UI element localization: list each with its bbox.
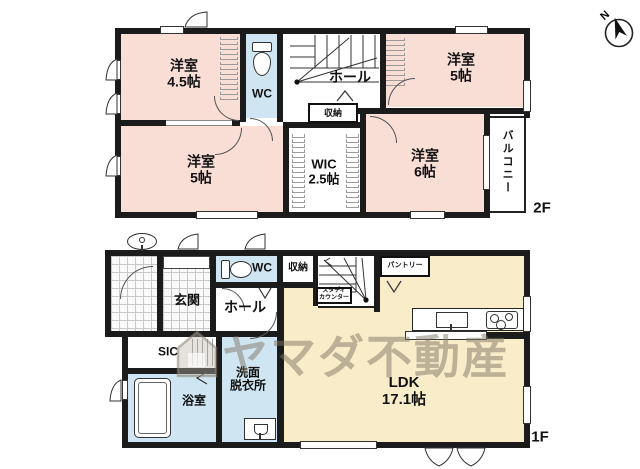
window [196, 211, 258, 219]
window [122, 380, 128, 400]
watermark-text: ヤマダ不動産 [222, 321, 510, 387]
entrance-door-swing-icon [176, 232, 200, 251]
outdoor-faucet-stem [141, 245, 143, 251]
wall [358, 108, 530, 114]
room-label-hall-1f: ホール [224, 300, 266, 316]
window [483, 135, 490, 190]
room-label-bedroom-4-5: 洋室4.5帖 [167, 58, 200, 89]
floor-label-1f: 1F [531, 430, 549, 447]
wall [277, 34, 283, 122]
wall [157, 256, 163, 337]
room-label-bedroom-5-top: 洋室5帖 [447, 52, 475, 83]
casement-window-icon [243, 232, 267, 251]
wall [105, 250, 111, 337]
casement-window-icon [104, 57, 118, 82]
floor-label-2f: 2F [533, 201, 551, 218]
watermark: ヤマダ不動産 [176, 326, 510, 382]
folding-door-mark [258, 287, 272, 299]
casement-window-icon [104, 91, 118, 116]
room-label-wic: WIC2.5帖 [308, 157, 339, 186]
wall [380, 34, 386, 113]
closet-hatch-stairwell [384, 38, 405, 86]
bathtub-icon [134, 378, 171, 438]
window [160, 26, 184, 34]
compass-north-label: N [598, 9, 612, 23]
toilet-icon [252, 42, 272, 52]
floor-plan: 洋室4.5帖 WC ホール 洋室5帖 収納 洋室5帖 WIC2.5帖 洋室6帖 … [0, 0, 640, 469]
room-label-bathroom: 浴室 [182, 394, 206, 407]
toilet-bowl-icon [230, 261, 252, 278]
entrance-step [163, 256, 210, 269]
french-door-icon [424, 447, 488, 468]
vanity-sink-icon [244, 418, 276, 440]
wic-hatch-right [346, 134, 359, 208]
wall [240, 34, 246, 122]
casement-window-icon [108, 378, 122, 403]
north-compass-icon: N [597, 5, 639, 51]
room-label-bedroom-5-left: 洋室5帖 [187, 154, 215, 185]
room-label-hall-2f: ホール [329, 70, 371, 86]
window [523, 80, 531, 112]
room-label-entrance: 玄関 [174, 294, 200, 309]
room-label-pantry: パントリー [387, 262, 422, 270]
wall [360, 108, 366, 218]
wall [283, 126, 289, 212]
toilet-icon [221, 260, 230, 279]
folding-door-mark [386, 280, 402, 293]
outdoor-faucet-tap-icon [139, 237, 145, 243]
sliding-door [166, 120, 232, 126]
watermark-house-logo [176, 329, 218, 379]
window [523, 296, 531, 332]
window [300, 441, 377, 449]
room-label-wc-2f: WC [252, 87, 272, 100]
closet-hatch-bedroom45 [220, 37, 238, 100]
room-label-study-counter: スタディカウンター [319, 288, 349, 302]
wall [210, 250, 216, 337]
window [410, 211, 445, 219]
room-label-storage-2f: 収納 [324, 108, 342, 118]
door-arc [250, 118, 273, 141]
room-label-wc-1f: WC [252, 261, 272, 274]
casement-window-icon [183, 10, 209, 29]
room-label-storage-1f: 収納 [288, 262, 308, 273]
room-label-sic: SIC [158, 345, 178, 358]
folding-door-mark [336, 90, 354, 102]
room-label-bedroom-6: 洋室6帖 [411, 148, 439, 179]
casement-window-icon [104, 153, 118, 178]
wic-hatch-left [292, 134, 305, 208]
room-label-balcony: バルコニー [501, 130, 513, 195]
window [523, 386, 531, 424]
window [455, 26, 488, 34]
